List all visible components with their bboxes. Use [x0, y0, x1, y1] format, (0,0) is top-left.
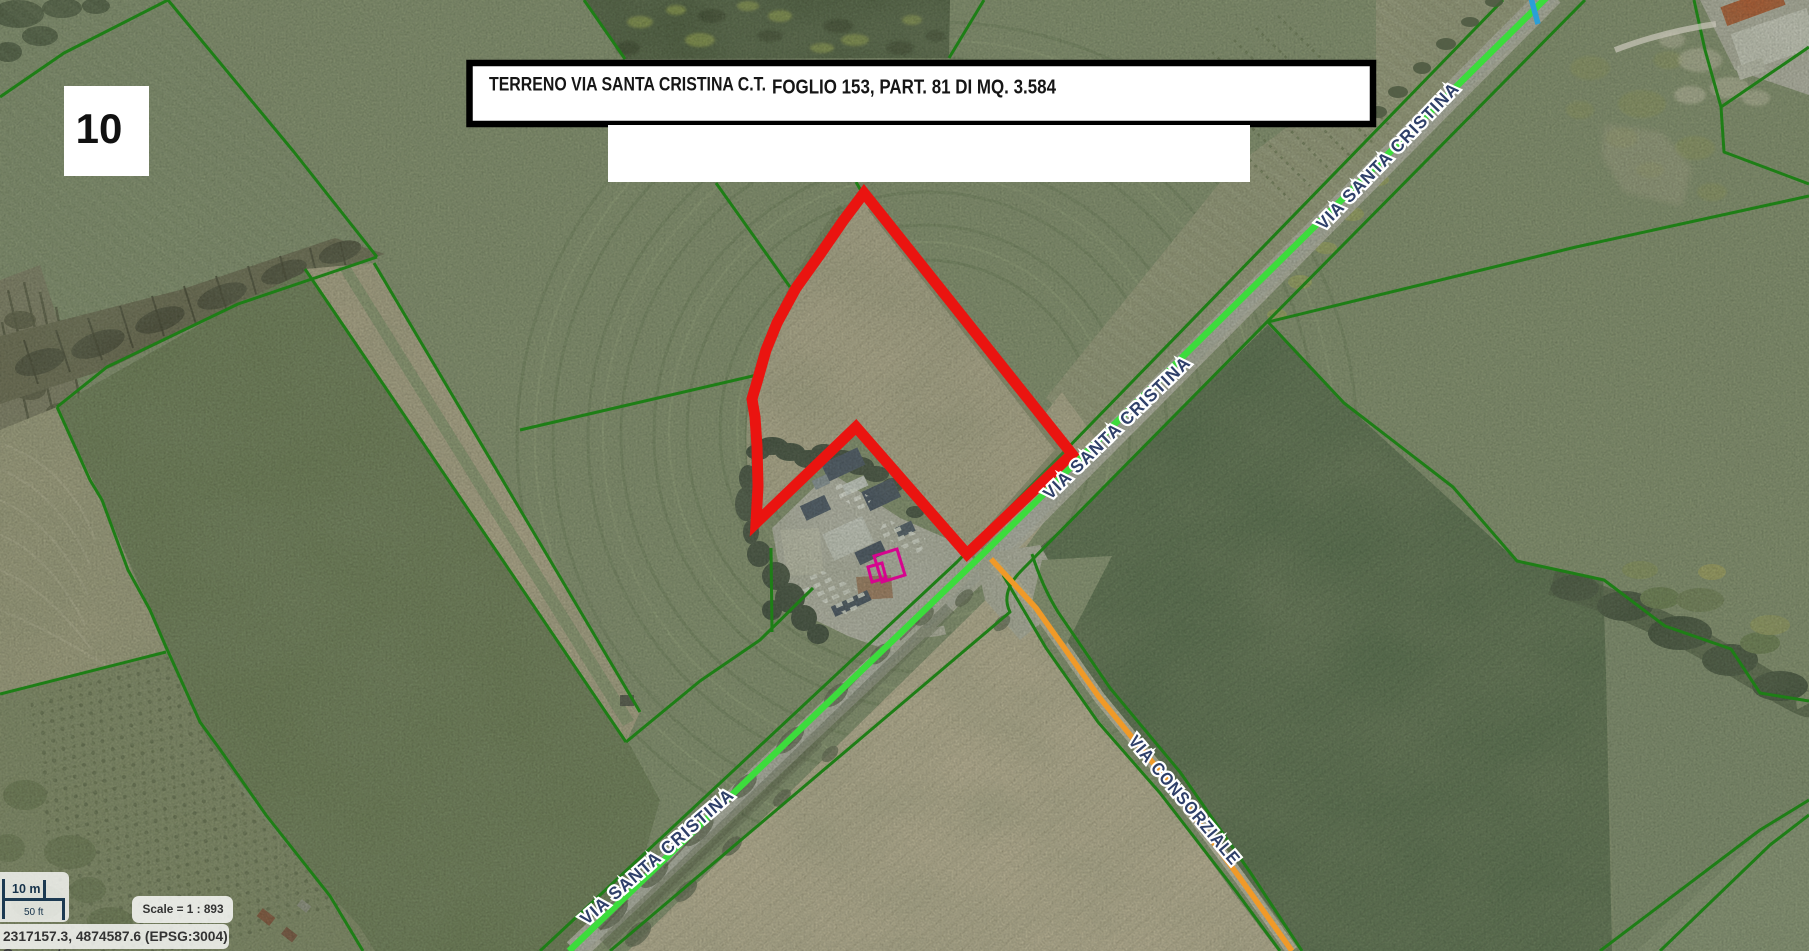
svg-text:TERRENO VIA SANTA CRISTINA C.T: TERRENO VIA SANTA CRISTINA C.T.: [489, 75, 766, 96]
svg-text:2317157.3, 4874587.6 (EPSG:300: 2317157.3, 4874587.6 (EPSG:3004): [3, 929, 228, 944]
svg-text:10: 10: [76, 105, 123, 152]
svg-text:Scale = 1 : 893: Scale = 1 : 893: [143, 902, 224, 916]
svg-text:10 m: 10 m: [12, 882, 41, 896]
svg-text:50 ft: 50 ft: [24, 907, 44, 918]
svg-text:Geonext: Geonext: [2, 946, 62, 951]
svg-text:FOGLIO 153, PART. 81 DI MQ. 3.: FOGLIO 153, PART. 81 DI MQ. 3.584: [772, 76, 1056, 99]
